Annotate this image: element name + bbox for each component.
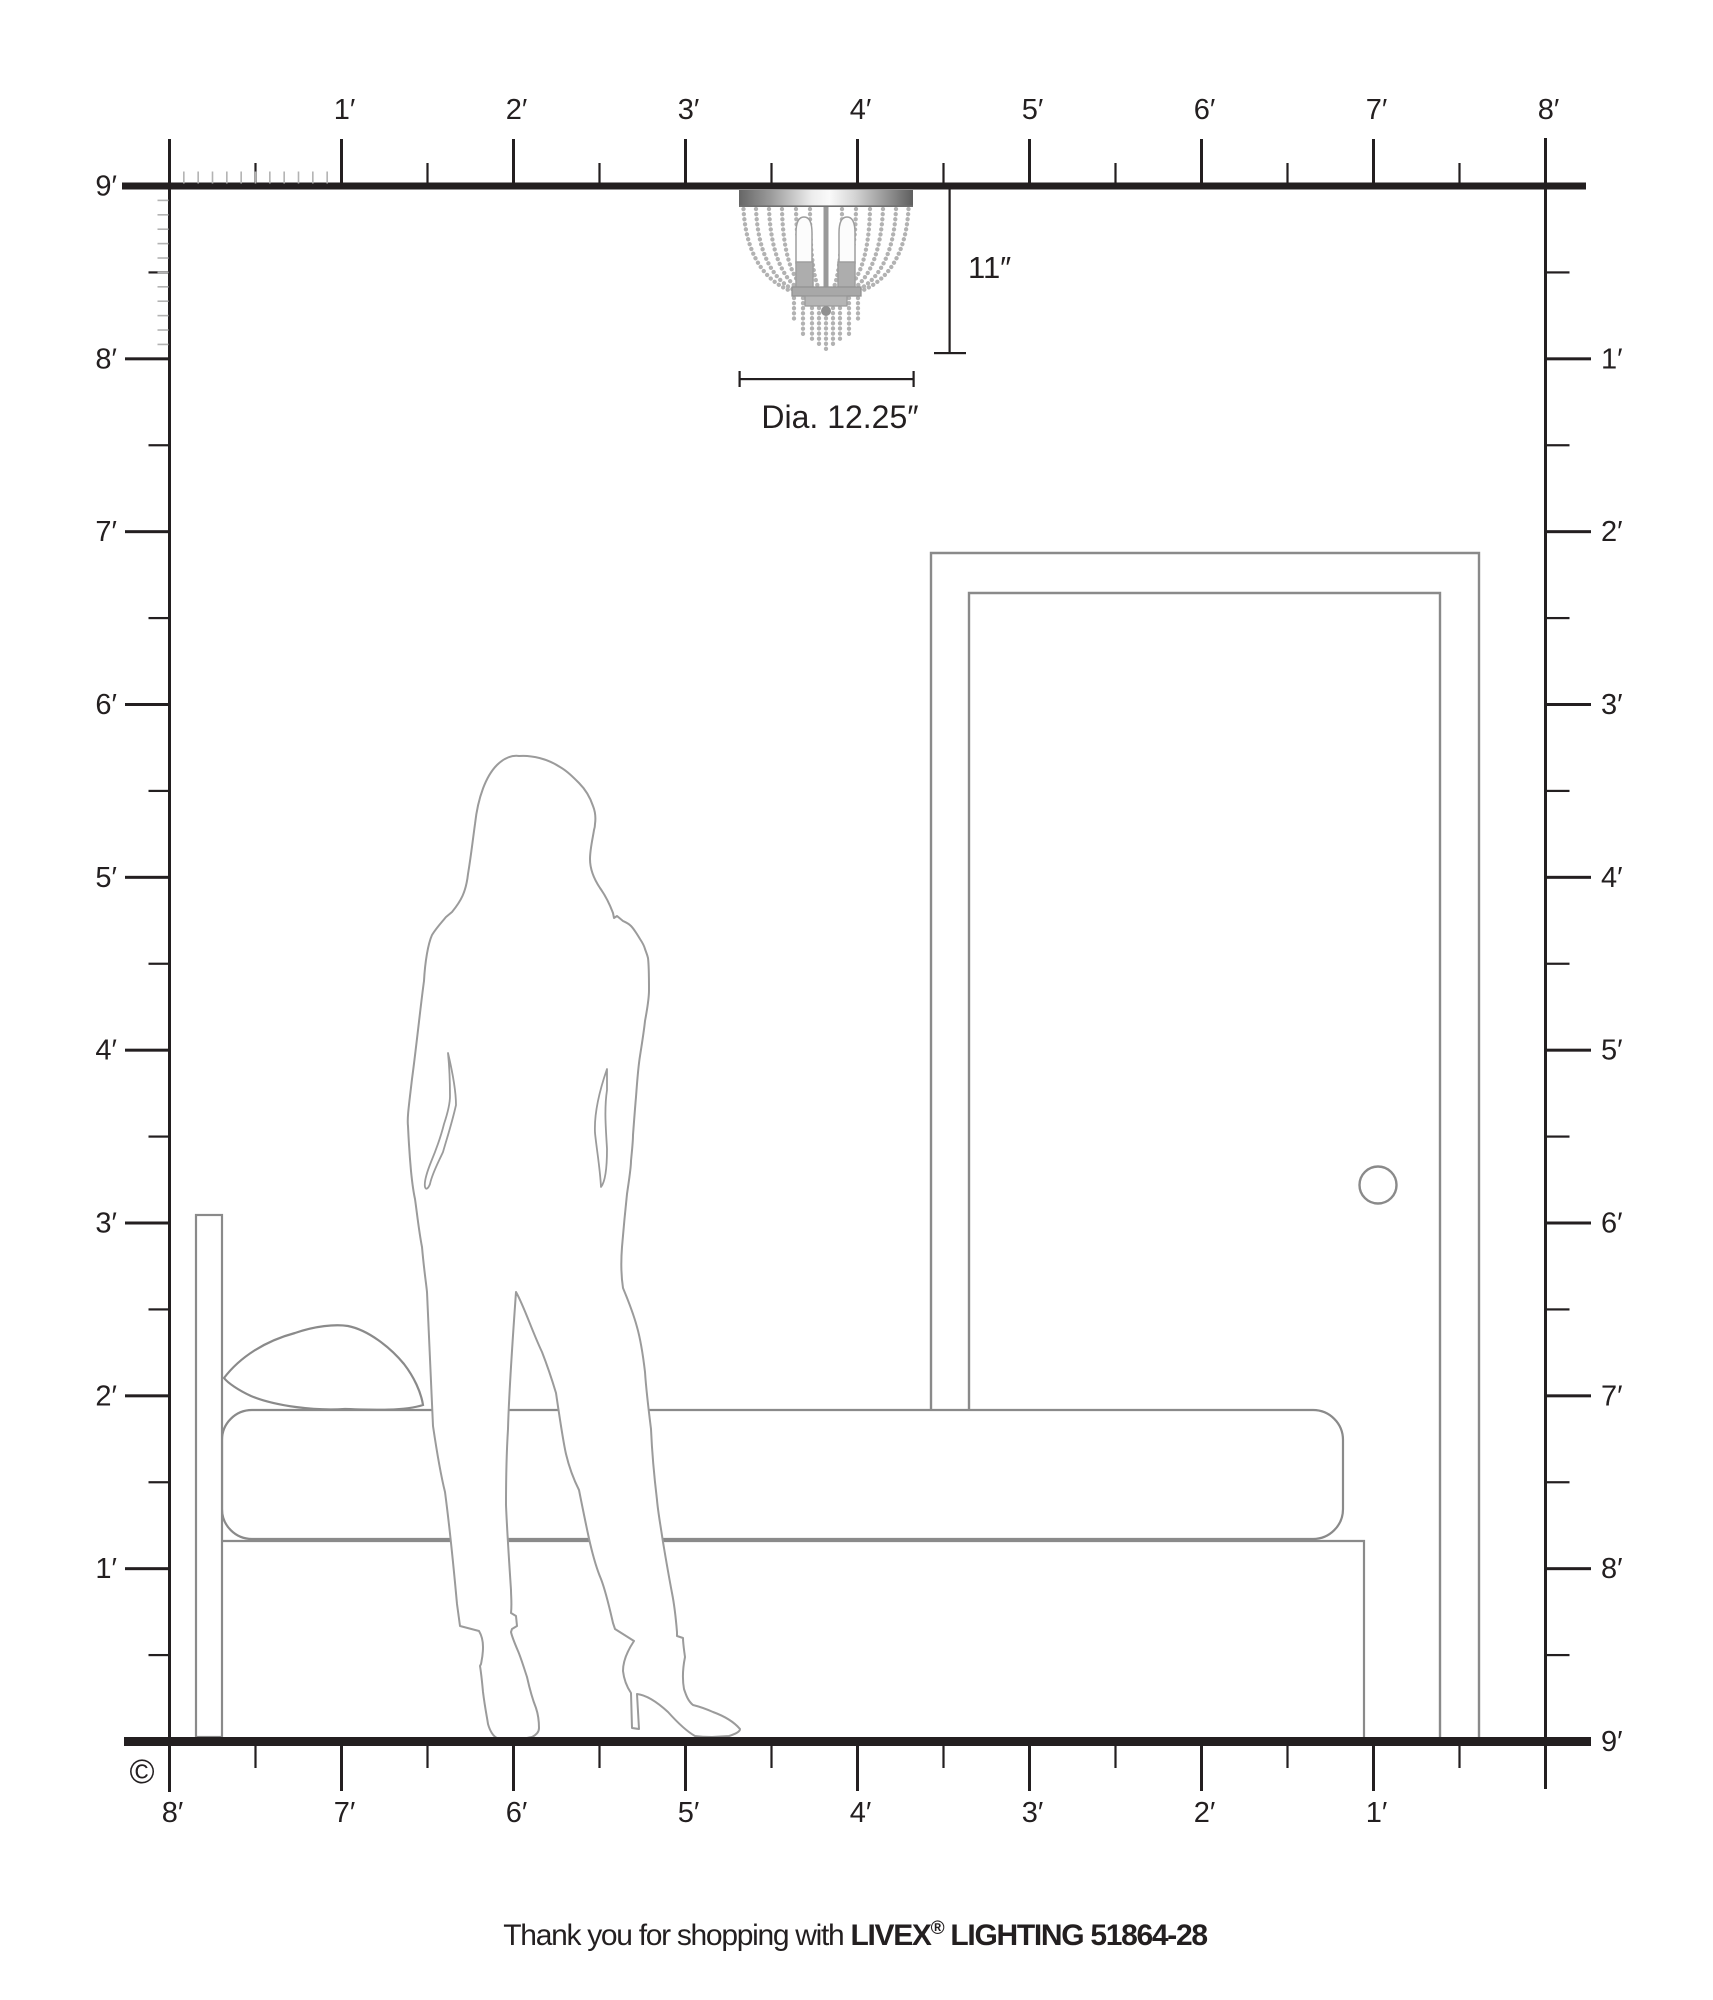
svg-text:3′: 3′ — [1022, 1797, 1044, 1829]
svg-text:2′: 2′ — [1601, 516, 1623, 548]
svg-text:1′: 1′ — [334, 94, 356, 126]
svg-text:7′: 7′ — [95, 516, 117, 548]
svg-text:6′: 6′ — [1194, 94, 1216, 126]
svg-text:8′: 8′ — [1538, 94, 1560, 126]
svg-text:9′: 9′ — [95, 171, 117, 203]
svg-text:4′: 4′ — [95, 1035, 117, 1067]
svg-text:5′: 5′ — [1601, 1035, 1623, 1067]
svg-text:9′: 9′ — [1601, 1726, 1623, 1758]
svg-text:3′: 3′ — [678, 94, 700, 126]
svg-text:7′: 7′ — [1366, 94, 1388, 126]
svg-text:5′: 5′ — [95, 862, 117, 894]
svg-text:3′: 3′ — [1601, 689, 1623, 721]
svg-text:Dia. 12.25″: Dia. 12.25″ — [761, 399, 918, 435]
svg-text:1′: 1′ — [1601, 343, 1623, 375]
svg-text:7′: 7′ — [334, 1797, 356, 1829]
svg-text:6′: 6′ — [506, 1797, 528, 1829]
svg-text:3′: 3′ — [95, 1208, 117, 1240]
svg-text:4′: 4′ — [1601, 862, 1623, 894]
svg-text:2′: 2′ — [506, 94, 528, 126]
svg-text:8′: 8′ — [162, 1797, 184, 1829]
svg-text:11″: 11″ — [968, 250, 1011, 285]
svg-text:7′: 7′ — [1601, 1380, 1623, 1412]
svg-text:4′: 4′ — [850, 94, 872, 126]
svg-text:4′: 4′ — [850, 1797, 872, 1829]
svg-text:Thank you for shopping with LI: Thank you for shopping with LIVEX® LIGHT… — [503, 1918, 1207, 1952]
svg-text:©: © — [129, 1753, 154, 1791]
svg-text:1′: 1′ — [95, 1553, 117, 1585]
svg-text:2′: 2′ — [1194, 1797, 1216, 1829]
svg-text:1′: 1′ — [1366, 1797, 1388, 1829]
svg-text:6′: 6′ — [1601, 1208, 1623, 1240]
svg-text:2′: 2′ — [95, 1380, 117, 1412]
svg-text:5′: 5′ — [678, 1797, 700, 1829]
svg-text:5′: 5′ — [1022, 94, 1044, 126]
svg-text:6′: 6′ — [95, 689, 117, 721]
svg-text:8′: 8′ — [95, 343, 117, 375]
svg-text:8′: 8′ — [1601, 1553, 1623, 1585]
